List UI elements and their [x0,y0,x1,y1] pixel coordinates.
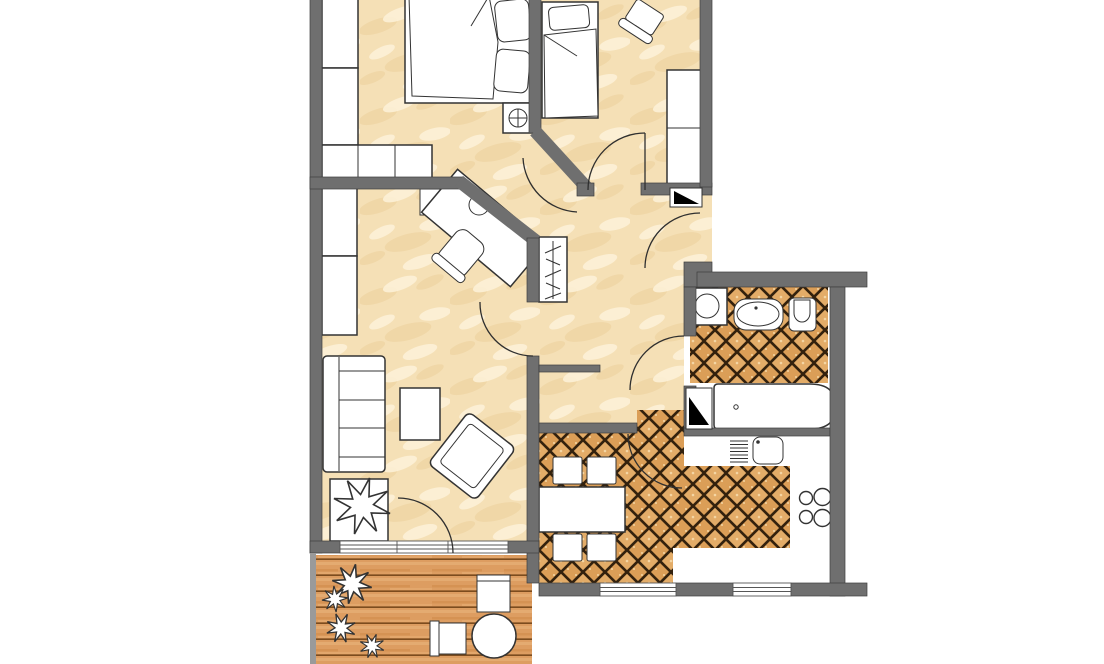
blanket [544,29,598,118]
sink-drainboard-icon [730,441,748,462]
dining-chair [587,457,616,484]
wall-living-hall-upper [527,238,539,302]
living-room-window [340,541,508,553]
wall-bathroom-left-upper [684,287,696,336]
shelf-unit [322,256,357,335]
pillow [494,0,532,43]
dining-chair [587,534,616,561]
double-bed [405,0,532,103]
balcony-chair [477,575,510,612]
wall-left-outer [310,0,322,553]
shelf-unit [322,188,357,256]
wall-between-bedrooms [529,0,541,133]
dresser [322,145,432,180]
dining-table [539,487,625,532]
kitchen-window [600,583,676,596]
wardrobe [322,0,358,68]
pillow [493,49,531,94]
wall-kitchen-bottom-a [539,583,600,596]
wall-right-upper [700,0,712,187]
sofa [323,356,385,472]
dining-chair [553,457,582,484]
pillow [548,4,590,30]
wall-stub [577,183,594,196]
coffee-table [400,388,440,440]
washbasin [734,299,783,330]
wall-kitchen-bottom-b [676,583,733,596]
dining-chair [553,534,582,561]
wall-right-outer [830,287,845,596]
wall-hall-stub [539,365,600,372]
wall-living-bottom-right [508,541,539,553]
balcony-chair [430,621,466,656]
bathtub [714,384,836,429]
ventilation-shaft-bathroom [686,388,712,429]
wall-living-bottom-left [310,541,340,553]
floor-plan [0,0,1104,664]
wall-kitchen-bottom-right [791,583,867,596]
kitchen-window [733,583,791,596]
wall-bedroom1-living [310,177,463,189]
hallway-furniture [539,237,567,302]
balcony-rail [310,553,316,664]
round-table [472,614,516,658]
wall-bathroom-top [697,272,867,287]
kitchen-sink [753,437,783,464]
blanket [409,0,498,99]
ventilation-shaft-hall [670,188,702,207]
wall-kitchen-top [539,423,637,433]
floor-plan-canvas [0,0,1104,664]
table-lamp-icon [509,109,527,127]
toilet [789,298,816,331]
single-bed [542,2,598,118]
wardrobe [322,68,358,145]
